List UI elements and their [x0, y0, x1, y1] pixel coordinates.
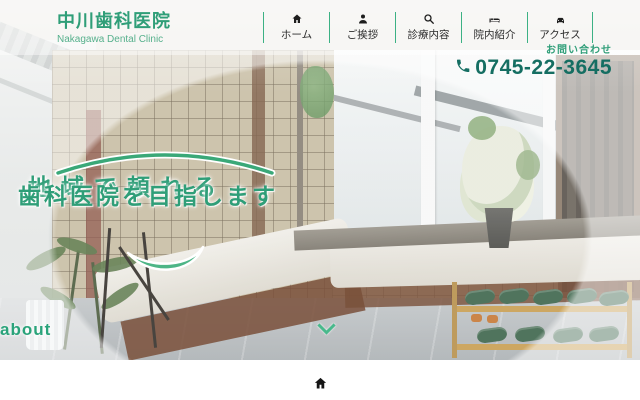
nav-label: 診療内容 — [408, 27, 450, 42]
brand-name-jp: 中川歯科医院 — [57, 7, 171, 33]
nav-label: ご挨拶 — [347, 27, 379, 42]
brand-name-en: Nakagawa Dental Clinic — [57, 34, 171, 45]
contact-label: お問い合わせ — [455, 41, 612, 56]
nav-item-greeting[interactable]: ご挨拶 — [329, 12, 395, 43]
nav-item-services[interactable]: 診療内容 — [395, 12, 461, 43]
phone-link[interactable]: 0745-22-3645 — [455, 56, 612, 80]
about-label[interactable]: about — [0, 320, 51, 340]
clinic-icon — [488, 13, 501, 25]
nav-label: アクセス — [539, 27, 580, 42]
home-section: HOME — [0, 360, 640, 400]
nav-label: ホーム — [281, 27, 312, 42]
home-icon — [291, 13, 303, 25]
site-logo[interactable]: 中川歯科医院 Nakagawa Dental Clinic — [57, 7, 171, 45]
person-icon — [357, 13, 369, 25]
nav-item-access[interactable]: アクセス — [527, 12, 593, 43]
nav-item-clinic-tour[interactable]: 院内紹介 — [461, 12, 527, 43]
page: 地域で頼れる 歯科医院を目指します about 中川歯科医院 Nakagawa … — [0, 0, 640, 400]
phone-icon — [455, 56, 471, 80]
car-icon — [554, 13, 567, 25]
nav-item-home[interactable]: ホーム — [263, 12, 329, 43]
hero-headline-line2: 歯科医院を目指します — [18, 177, 278, 211]
contact-block: お問い合わせ 0745-22-3645 — [455, 41, 612, 80]
home-icon — [0, 376, 640, 396]
search-icon — [423, 13, 435, 25]
nav-label: 院内紹介 — [474, 27, 516, 42]
main-nav: ホーム ご挨拶 診療内容 院内紹介 — [263, 12, 593, 43]
phone-number: 0745-22-3645 — [475, 56, 612, 80]
